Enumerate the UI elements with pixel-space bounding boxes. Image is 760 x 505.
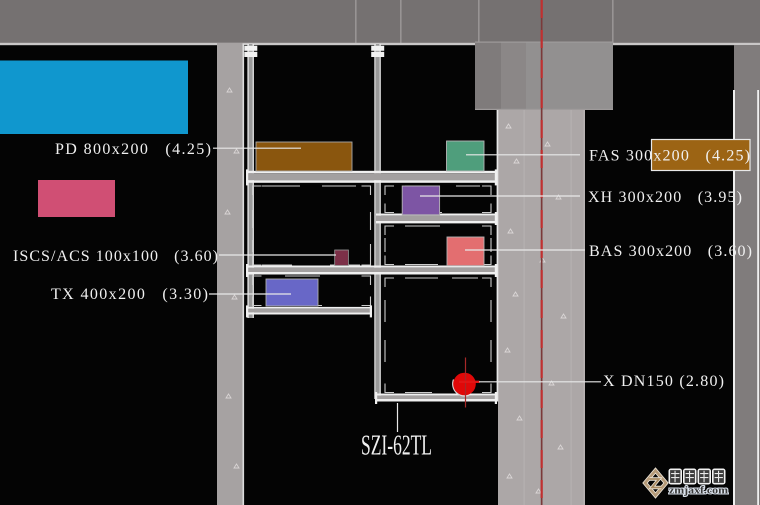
svg-text:ISCS/ACS 100x100 (3.60): ISCS/ACS 100x100 (3.60) [13, 248, 218, 265]
svg-text:PD 800x200 (4.25): PD 800x200 (4.25) [55, 141, 211, 158]
svg-text:XH 300x200 (3.95): XH 300x200 (3.95) [588, 189, 742, 206]
svg-text:X DN150 (2.80): X DN150 (2.80) [603, 373, 724, 390]
svg-text:TX 400x200 (3.30): TX 400x200 (3.30) [51, 286, 208, 303]
svg-text:zmjaxf.com: zmjaxf.com [669, 486, 728, 497]
svg-text:SZI-62TL: SZI-62TL [361, 430, 432, 462]
svg-text:FAS 300x200 (4.25): FAS 300x200 (4.25) [589, 148, 750, 165]
svg-text:BAS 300x200 (3.60): BAS 300x200 (3.60) [589, 243, 752, 260]
